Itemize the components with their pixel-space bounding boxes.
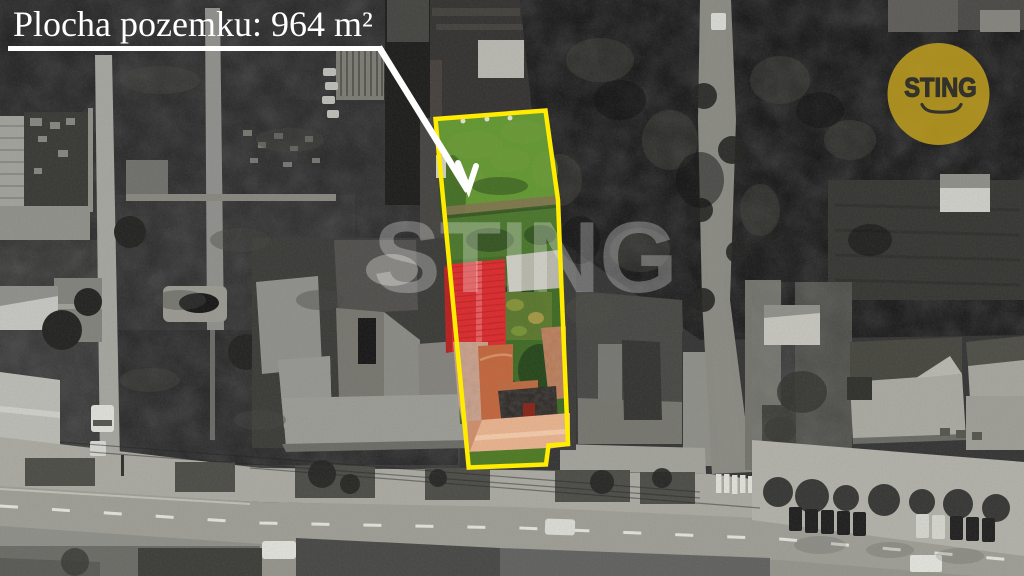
svg-text:STING: STING	[373, 202, 677, 314]
svg-text:Plocha pozemku: 964 m²: Plocha pozemku: 964 m²	[13, 4, 373, 44]
svg-text:STING: STING	[904, 73, 977, 103]
